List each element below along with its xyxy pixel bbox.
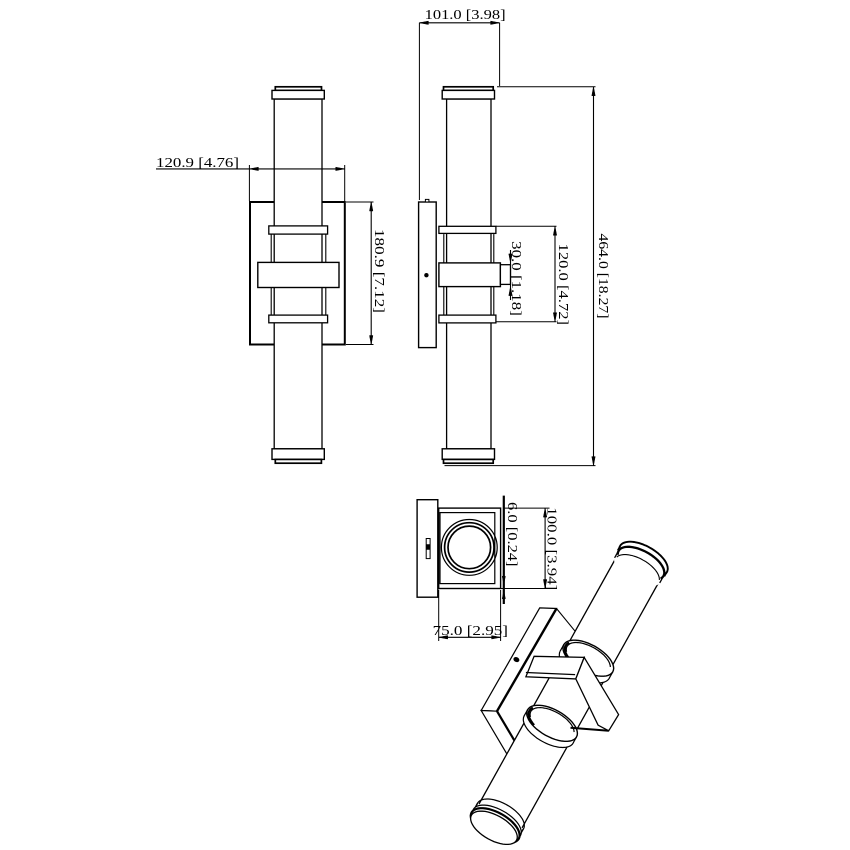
svg-text:120.9 [4.76]: 120.9 [4.76]: [156, 155, 239, 170]
svg-text:180.9 [7.12]: 180.9 [7.12]: [372, 229, 387, 313]
svg-text:120.0 [4.72]: 120.0 [4.72]: [556, 244, 571, 326]
svg-text:75.0 [2.95]: 75.0 [2.95]: [433, 623, 508, 638]
svg-text:101.0 [3.98]: 101.0 [3.98]: [425, 7, 506, 22]
svg-text:100.0 [3.94]: 100.0 [3.94]: [545, 507, 560, 590]
svg-text:464.0 [18.27]: 464.0 [18.27]: [596, 234, 611, 319]
svg-text:30.0 [1.18]: 30.0 [1.18]: [509, 241, 524, 316]
svg-text:6.0 [0.24]: 6.0 [0.24]: [505, 502, 520, 567]
